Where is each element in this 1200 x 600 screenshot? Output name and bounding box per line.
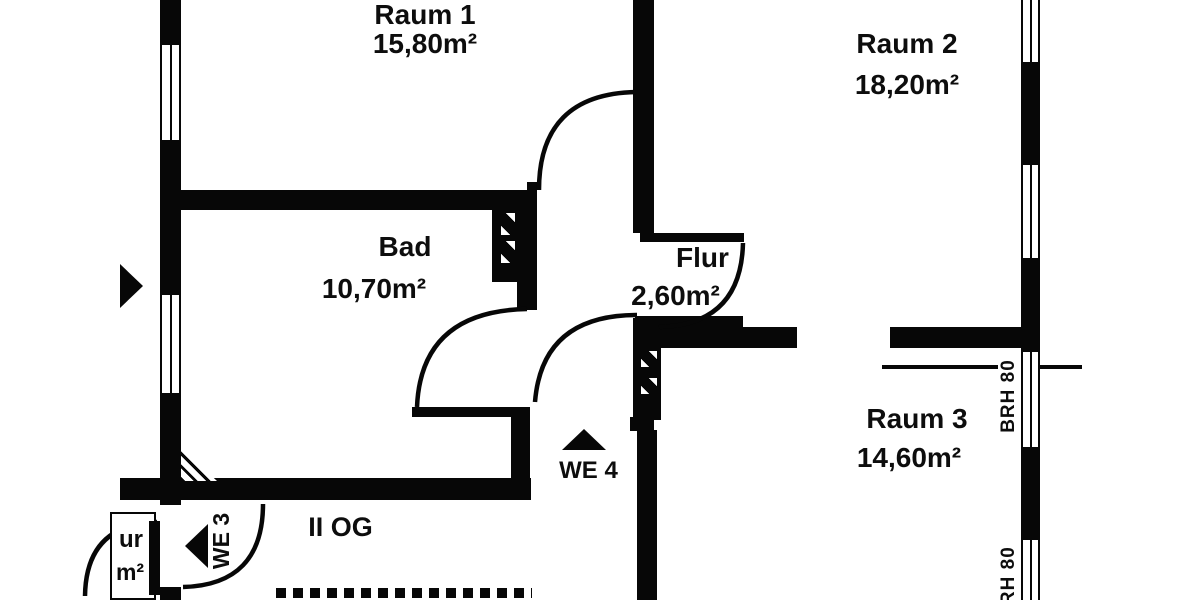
room-label-raum1-area: 15,80m² xyxy=(340,29,510,58)
room-label-raum3-name: Raum 3 xyxy=(832,404,1002,433)
dashed-section-line xyxy=(276,588,532,598)
sill-label-brh80-1: BRH 80 xyxy=(999,351,1021,441)
room-label-raum3-area: 14,60m² xyxy=(824,443,994,472)
unit-label-we3: WE 3 xyxy=(209,505,235,577)
floor-label: II OG xyxy=(278,513,403,541)
room-label-bad-area: 10,70m² xyxy=(294,274,454,303)
door-arc-bad xyxy=(417,309,527,407)
room-label-raum2-area: 18,20m² xyxy=(822,70,992,99)
sill-label-brh80-2: BRH 80 xyxy=(999,538,1021,600)
room-label-bad-name: Bad xyxy=(340,232,470,261)
room-label-flur-name: Flur xyxy=(640,243,765,272)
clipped-label-line2: m² xyxy=(108,560,152,584)
door-arc-raum1 xyxy=(539,92,636,190)
clipped-label-line1: ur xyxy=(110,527,152,552)
room-label-flur-area: 2,60m² xyxy=(598,281,753,310)
floor-plan: Raum 1 15,80m² Raum 2 18,20m² Bad 10,70m… xyxy=(0,0,1200,600)
room-label-raum1-name: Raum 1 xyxy=(340,0,510,29)
unit-label-we4: WE 4 xyxy=(526,458,651,483)
door-arc-flur-left xyxy=(535,315,637,402)
room-label-raum2-name: Raum 2 xyxy=(822,29,992,58)
